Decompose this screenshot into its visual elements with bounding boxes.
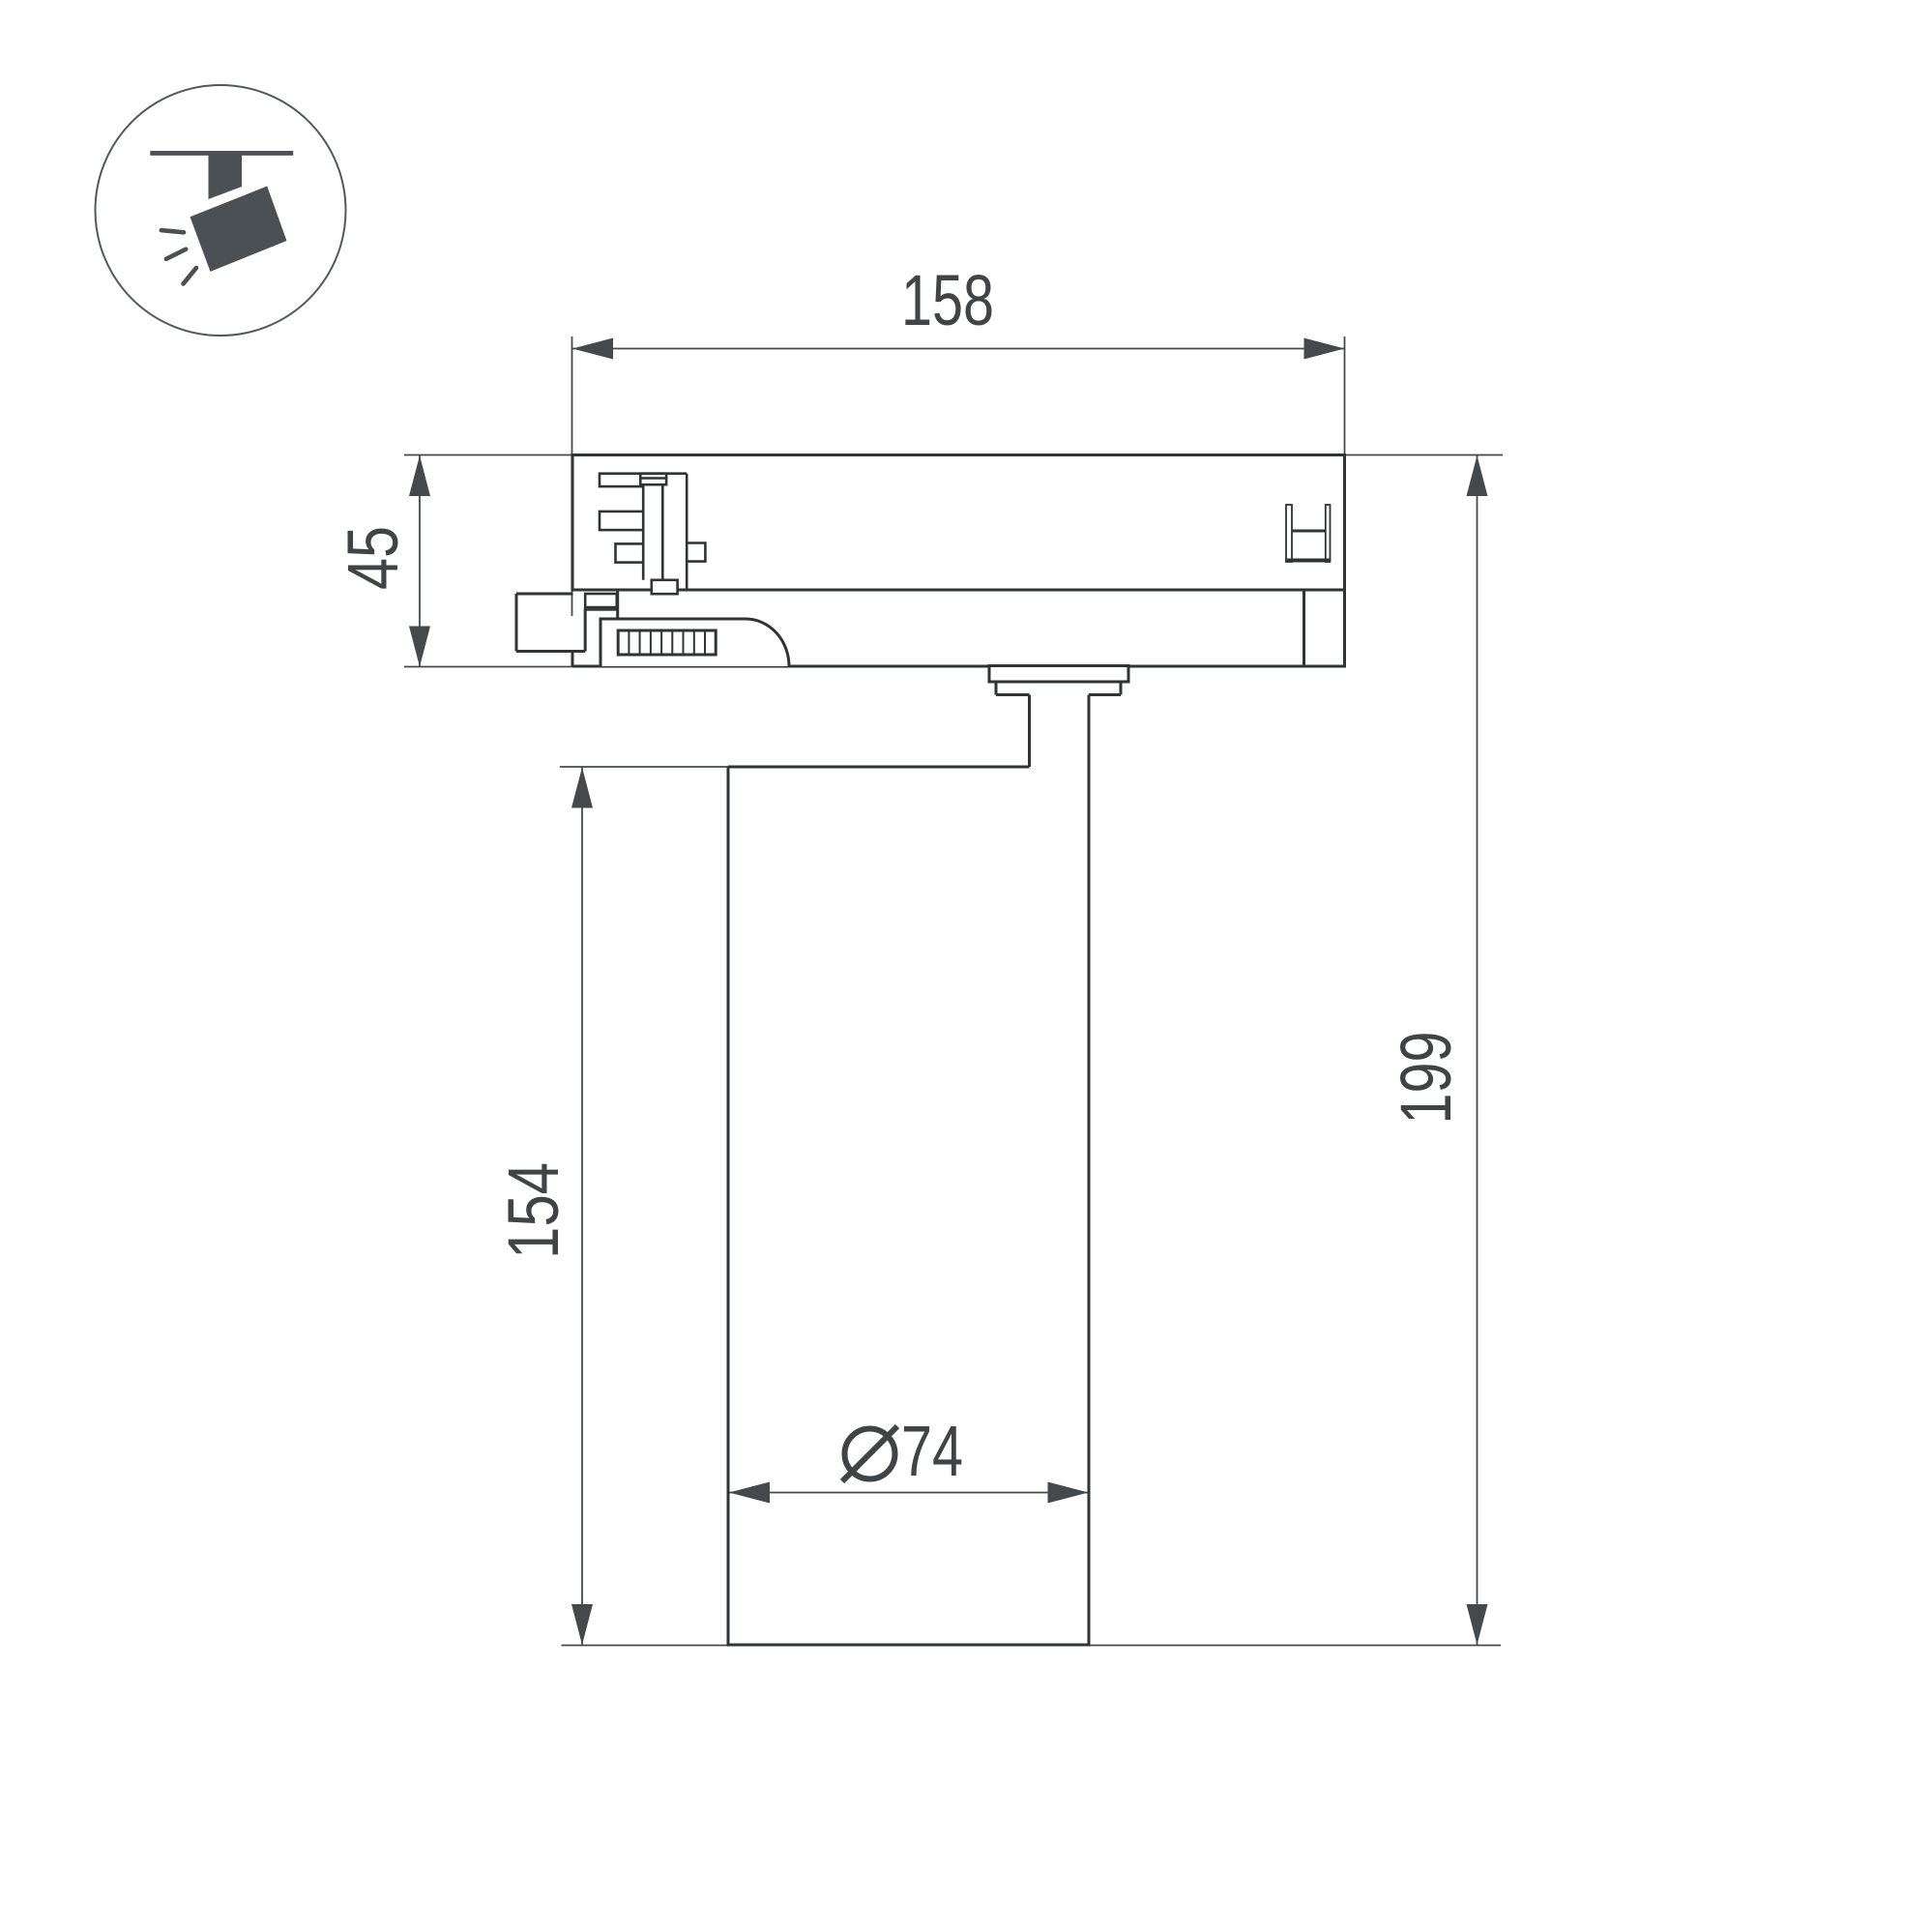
svg-text:154: 154 [493, 1162, 573, 1259]
svg-text:74: 74 [901, 1411, 963, 1491]
svg-text:45: 45 [333, 526, 413, 590]
svg-text:199: 199 [1386, 1032, 1466, 1125]
svg-text:158: 158 [901, 260, 994, 340]
